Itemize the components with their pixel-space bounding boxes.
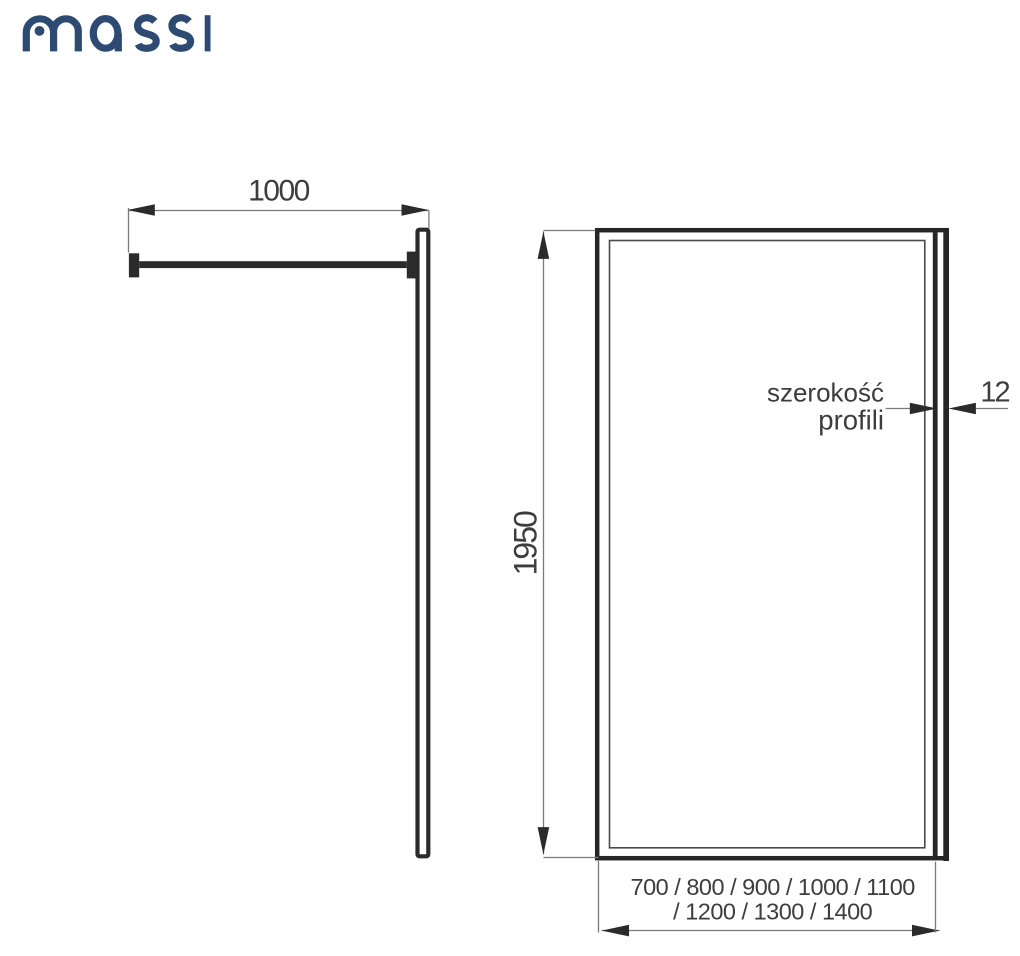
svg-text:profili: profili — [818, 405, 884, 436]
svg-text:12: 12 — [980, 377, 1009, 409]
svg-text:1000: 1000 — [248, 175, 310, 208]
svg-text:/ 1200 / 1300 / 1400: / 1200 / 1300 / 1400 — [673, 899, 872, 925]
svg-text:1950: 1950 — [508, 511, 544, 575]
svg-text:700 / 800 / 900 / 1000 / 1100: 700 / 800 / 900 / 1000 / 1100 — [631, 874, 916, 900]
svg-text:szerokość: szerokość — [767, 378, 884, 408]
